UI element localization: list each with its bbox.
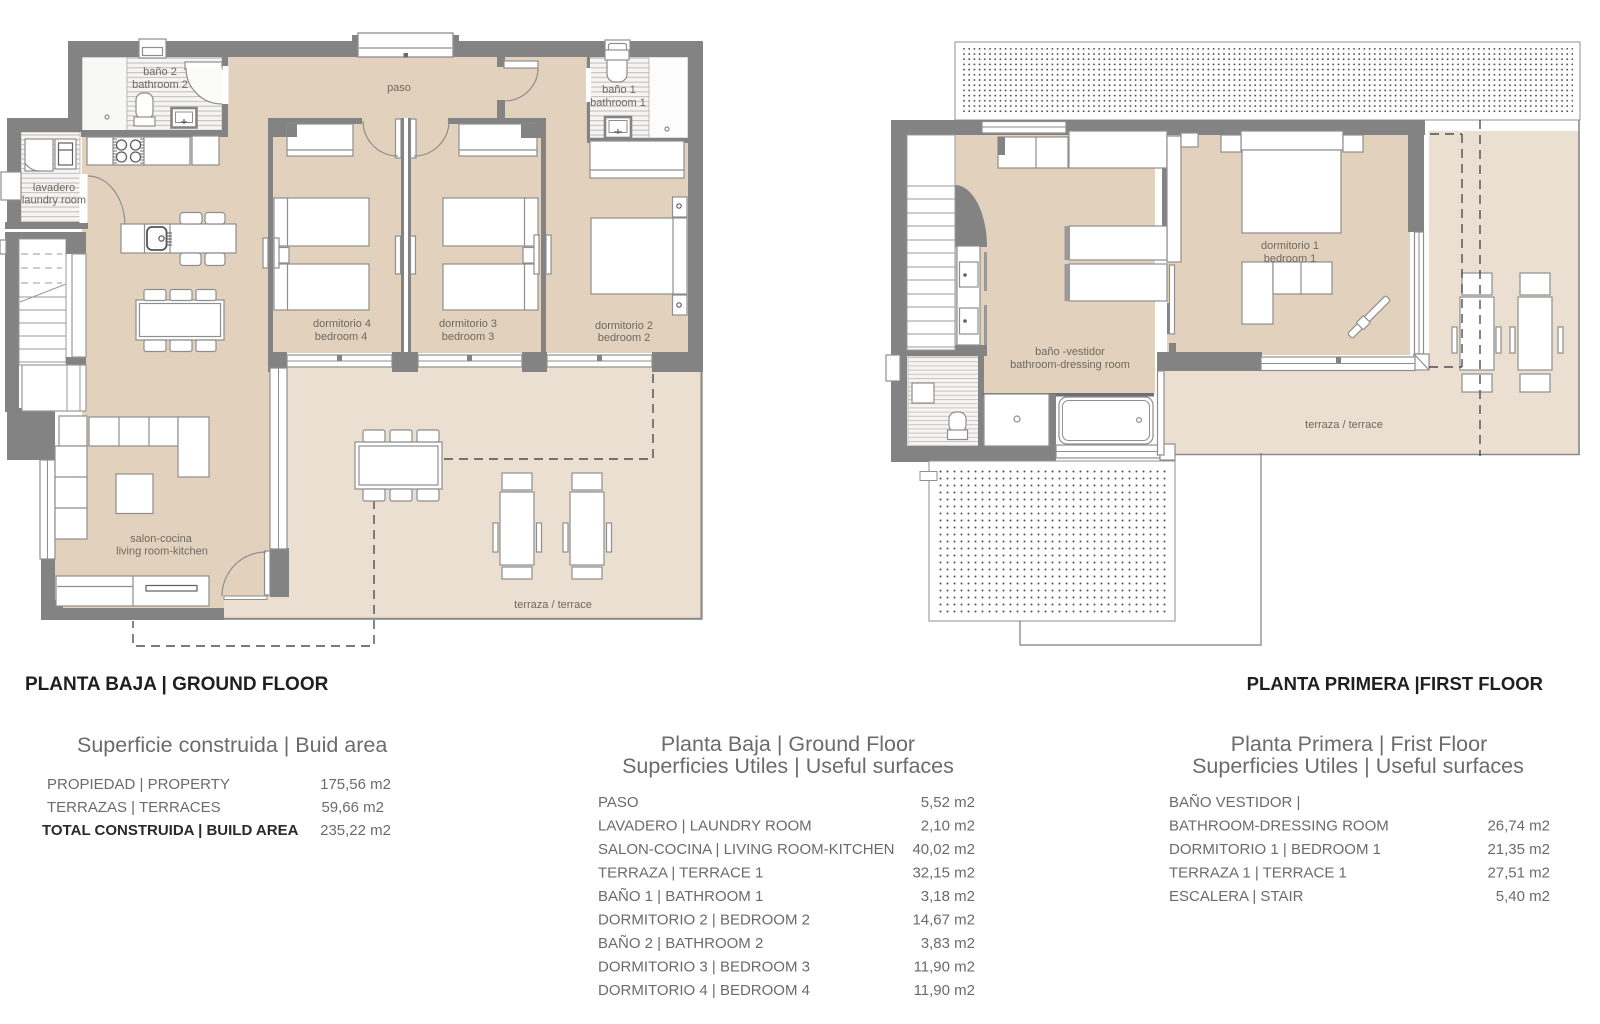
svg-text:Superficie construida | Buid a: Superficie construida | Buid area (77, 733, 387, 757)
svg-text:TOTAL CONSTRUIDA | BUILD AREA: TOTAL CONSTRUIDA | BUILD AREA (42, 822, 299, 839)
svg-text:paso: paso (387, 82, 411, 94)
svg-text:salon-cocina: salon-cocina (130, 533, 193, 545)
svg-text:21,35 m2: 21,35 m2 (1487, 841, 1550, 858)
svg-text:bathroom 1: bathroom 1 (590, 97, 646, 109)
svg-text:BATHROOM-DRESSING ROOM: BATHROOM-DRESSING ROOM (1169, 818, 1389, 835)
svg-text:SALON-COCINA | LIVING ROOM-KIT: SALON-COCINA | LIVING ROOM-KITCHEN (598, 841, 894, 858)
svg-text:DORMITORIO 2 | BEDROOM 2: DORMITORIO 2 | BEDROOM 2 (598, 912, 810, 929)
svg-text:59,66 m2: 59,66 m2 (321, 799, 384, 816)
svg-text:bathroom-dressing room: bathroom-dressing room (1010, 359, 1130, 371)
svg-text:235,22 m2: 235,22 m2 (320, 822, 391, 839)
svg-text:baño 2: baño 2 (143, 66, 177, 78)
svg-text:5,40 m2: 5,40 m2 (1496, 888, 1550, 905)
svg-text:Superficies Utiles | Useful su: Superficies Utiles | Useful surfaces (622, 754, 954, 778)
svg-text:Planta Baja | Ground Floor: Planta Baja | Ground Floor (661, 732, 915, 756)
svg-text:bedroom 1: bedroom 1 (1264, 253, 1317, 265)
svg-text:TERRAZA 1 | TERRACE 1: TERRAZA 1 | TERRACE 1 (1169, 865, 1347, 882)
svg-text:bedroom 2: bedroom 2 (598, 332, 651, 344)
svg-text:5,52 m2: 5,52 m2 (921, 794, 975, 811)
svg-text:11,90 m2: 11,90 m2 (914, 982, 975, 999)
svg-text:living room-kitchen: living room-kitchen (116, 546, 208, 558)
svg-text:Planta Primera | Frist Floor: Planta Primera | Frist Floor (1231, 732, 1487, 756)
svg-text:175,56 m2: 175,56 m2 (320, 776, 391, 793)
svg-text:baño -vestidor: baño -vestidor (1035, 346, 1105, 358)
svg-text:LAVADERO | LAUNDRY ROOM: LAVADERO | LAUNDRY ROOM (598, 818, 812, 835)
svg-text:BAÑO 2 | BATHROOM 2: BAÑO 2 | BATHROOM 2 (598, 935, 763, 952)
svg-text:PLANTA PRIMERA |FIRST FLOOR: PLANTA PRIMERA |FIRST FLOOR (1247, 673, 1543, 694)
svg-text:TERRAZAS | TERRACES: TERRAZAS | TERRACES (47, 799, 221, 816)
svg-text:32,15 m2: 32,15 m2 (912, 865, 975, 882)
svg-text:bedroom 4: bedroom 4 (315, 331, 368, 343)
svg-text:ESCALERA | STAIR: ESCALERA | STAIR (1169, 888, 1304, 905)
svg-text:DORMITORIO 1 | BEDROOM 1: DORMITORIO 1 | BEDROOM 1 (1169, 841, 1381, 858)
svg-text:dormitorio 2: dormitorio 2 (595, 320, 653, 332)
svg-text:2,10 m2: 2,10 m2 (921, 818, 975, 835)
svg-text:baño 1: baño 1 (602, 84, 636, 96)
svg-text:lavadero: lavadero (33, 182, 75, 194)
svg-text:bathroom 2: bathroom 2 (132, 79, 188, 91)
svg-text:3,18 m2: 3,18 m2 (921, 888, 975, 905)
svg-text:DORMITORIO 3 | BEDROOM 3: DORMITORIO 3 | BEDROOM 3 (598, 959, 810, 976)
svg-text:dormitorio 3: dormitorio 3 (439, 318, 497, 330)
svg-text:dormitorio 4: dormitorio 4 (313, 318, 371, 330)
svg-text:terraza / terrace: terraza / terrace (1305, 419, 1383, 431)
svg-text:dormitorio 1: dormitorio 1 (1261, 240, 1319, 252)
svg-text:PROPIEDAD | PROPERTY: PROPIEDAD | PROPERTY (47, 776, 230, 793)
svg-text:PLANTA BAJA | GROUND FLOOR: PLANTA BAJA | GROUND FLOOR (25, 674, 329, 695)
svg-text:3,83 m2: 3,83 m2 (921, 935, 975, 952)
svg-text:terraza / terrace: terraza / terrace (514, 599, 592, 611)
svg-text:26,74 m2: 26,74 m2 (1487, 818, 1550, 835)
svg-text:BAÑO VESTIDOR |: BAÑO VESTIDOR | (1169, 794, 1300, 811)
svg-text:bedroom 3: bedroom 3 (442, 331, 495, 343)
svg-text:TERRAZA | TERRACE 1: TERRAZA | TERRACE 1 (598, 865, 763, 882)
svg-text:40,02 m2: 40,02 m2 (912, 841, 975, 858)
svg-text:14,67 m2: 14,67 m2 (912, 912, 975, 929)
svg-text:27,51 m2: 27,51 m2 (1487, 865, 1550, 882)
svg-text:Superficies Utiles | Useful su: Superficies Utiles | Useful surfaces (1192, 754, 1524, 778)
svg-text:DORMITORIO 4 | BEDROOM 4: DORMITORIO 4 | BEDROOM 4 (598, 982, 810, 999)
svg-text:laundry room: laundry room (22, 195, 86, 207)
svg-text:PASO: PASO (598, 794, 639, 811)
svg-text:11,90 m2: 11,90 m2 (914, 959, 975, 976)
svg-text:BAÑO 1 | BATHROOM 1: BAÑO 1 | BATHROOM 1 (598, 888, 763, 905)
